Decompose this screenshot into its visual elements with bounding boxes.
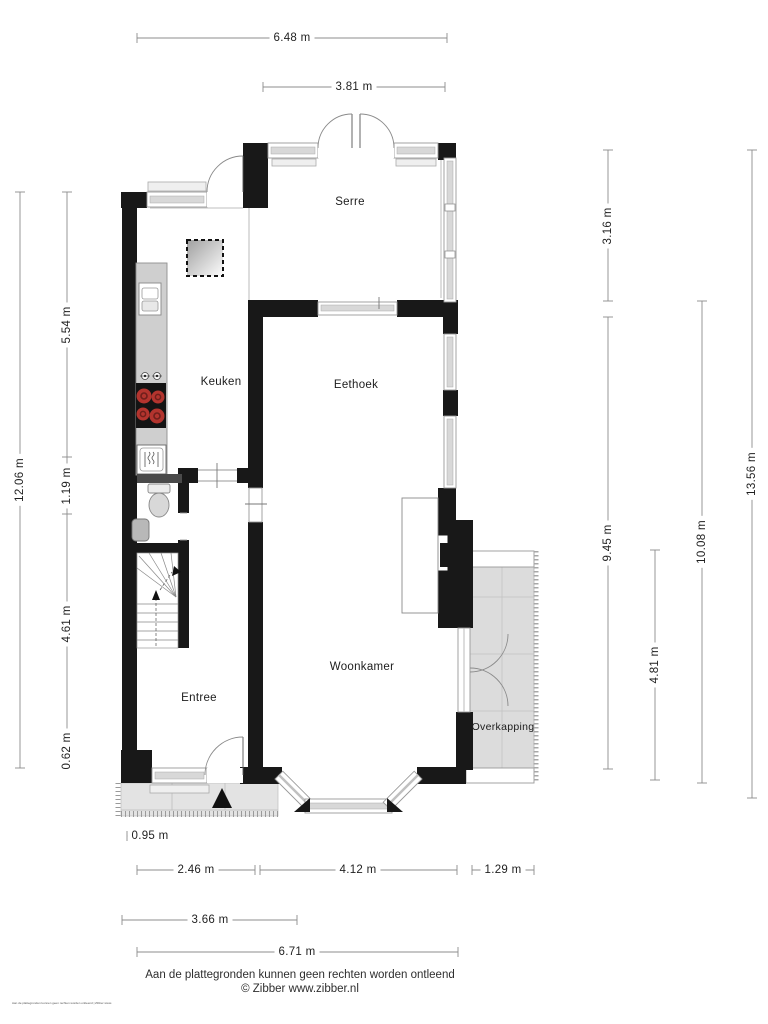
floorplan-page: Serre Keuken Eethoek Woonkamer Entree Ov… [0, 0, 768, 1024]
dimension-label: 0.62 m [61, 729, 73, 774]
stairs-icon [137, 553, 181, 648]
dimension-label: 9.45 m [602, 521, 614, 566]
room-label-woonkamer: Woonkamer [330, 661, 394, 673]
dimension-label: 3.66 m [188, 914, 233, 926]
dimension-label: 4.61 m [61, 602, 73, 647]
room-label-entree: Entree [181, 692, 217, 704]
toilet-icon [148, 484, 170, 517]
dimension-label: 12.06 m [14, 454, 26, 506]
room-label-eethoek: Eethoek [334, 379, 378, 391]
dimension-label: 1.29 m [481, 864, 526, 876]
dishwasher-icon [137, 445, 166, 474]
dimension-label: 10.08 m [696, 516, 708, 568]
dimension-label: 13.56 m [746, 448, 758, 500]
room-label-serre: Serre [335, 196, 365, 208]
dimension-label: 4.81 m [649, 643, 661, 688]
dimension-label: 3.16 m [602, 204, 614, 249]
walls [121, 143, 473, 784]
dimension-label: 6.71 m [275, 946, 320, 958]
wc [132, 474, 182, 541]
dimension-label: 5.54 m [61, 303, 73, 348]
rooflight-icon [187, 240, 223, 276]
kitchen-counter [136, 263, 167, 475]
dimension-label: 6.48 m [270, 32, 315, 44]
floor-plan-canvas [0, 0, 768, 1024]
stove-icon [136, 383, 166, 428]
footer-disclaimer: Aan de plattegronden kunnen geen rechten… [0, 969, 600, 981]
basin-icon [132, 519, 149, 541]
cupboard-outline [402, 498, 438, 613]
dimension-label: 3.81 m [332, 81, 377, 93]
overkapping-floor [466, 551, 536, 783]
dimension-label: 2.46 m [174, 864, 219, 876]
dimension-label: 1.19 m [61, 464, 73, 509]
footer-micro-text: Aan de plattegronden kunnen geen rechten… [12, 1001, 112, 1005]
wc-partition [137, 474, 182, 483]
sink-icon [139, 283, 161, 315]
dimension-label: 4.12 m [336, 864, 381, 876]
footer-credit: © Zibber www.zibber.nl [0, 983, 600, 995]
room-label-overkapping: Overkapping [472, 721, 535, 733]
room-label-keuken: Keuken [201, 376, 242, 388]
dimension-label: 0.95 m [128, 830, 173, 842]
